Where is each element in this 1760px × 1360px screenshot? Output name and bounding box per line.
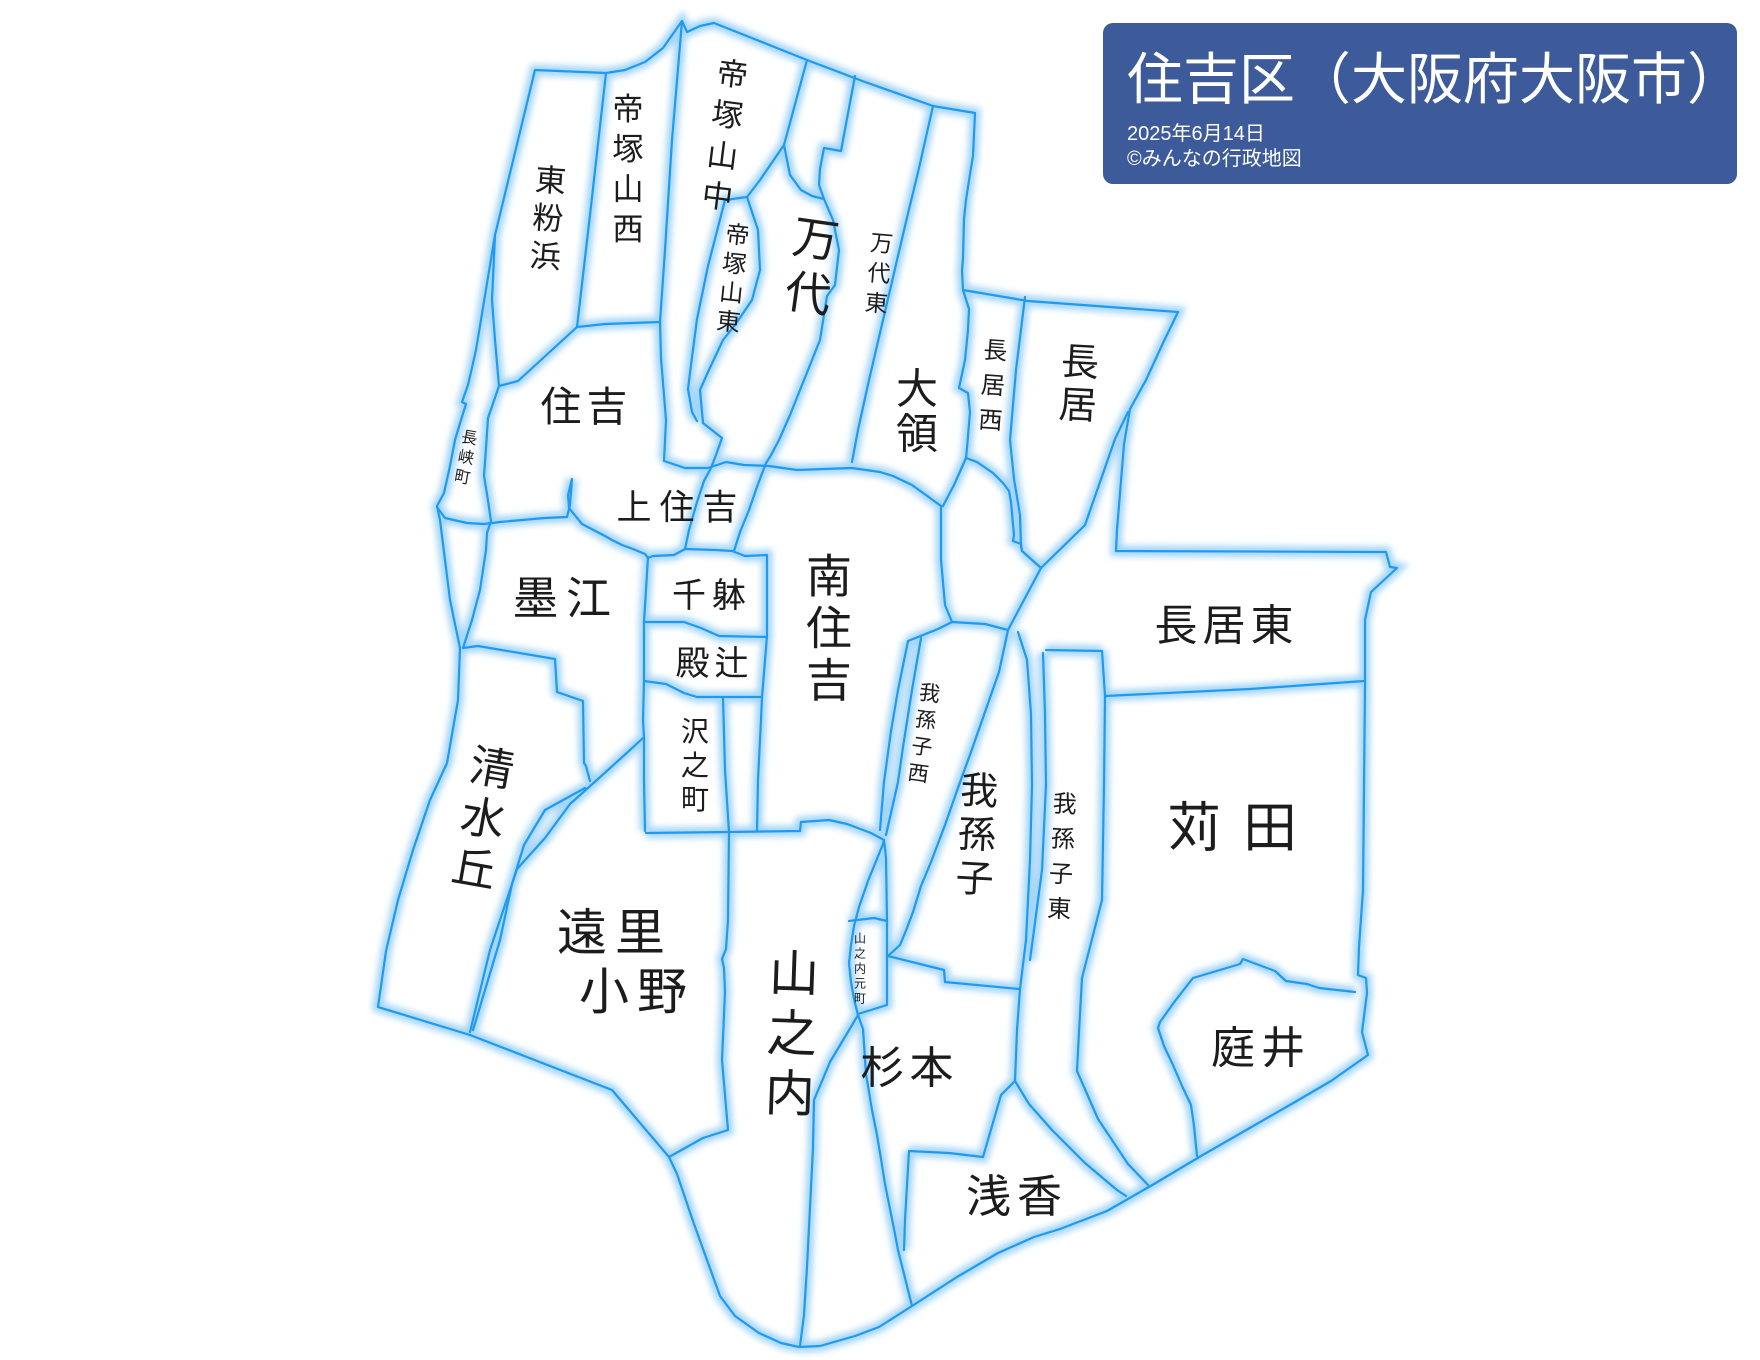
svg-text:2025年6月14日: 2025年6月14日 xyxy=(1127,122,1265,145)
svg-text:西: 西 xyxy=(906,761,930,787)
svg-text:代: 代 xyxy=(782,265,835,323)
svg-text:殿辻: 殿辻 xyxy=(676,645,754,683)
svg-text:庭井: 庭井 xyxy=(1211,1024,1311,1073)
svg-text:山: 山 xyxy=(613,172,644,207)
svg-text:吉: 吉 xyxy=(806,655,852,707)
svg-text:粉: 粉 xyxy=(531,200,564,237)
svg-text:東: 東 xyxy=(864,289,889,317)
svg-text:之: 之 xyxy=(854,946,866,960)
svg-text:居: 居 xyxy=(980,372,1006,401)
svg-text:帝: 帝 xyxy=(724,221,751,250)
svg-text:長: 長 xyxy=(1060,341,1100,385)
svg-text:水: 水 xyxy=(457,791,509,847)
svg-text:子: 子 xyxy=(955,858,995,902)
svg-text:我: 我 xyxy=(959,770,999,814)
svg-text:内: 内 xyxy=(854,961,866,975)
svg-text:町: 町 xyxy=(854,991,866,1005)
svg-text:之: 之 xyxy=(681,750,709,781)
svg-text:墨江: 墨江 xyxy=(513,573,619,624)
svg-text:帝: 帝 xyxy=(613,92,644,127)
svg-text:南: 南 xyxy=(806,551,852,603)
svg-text:山: 山 xyxy=(705,137,740,176)
svg-text:居: 居 xyxy=(1058,384,1098,428)
svg-text:西: 西 xyxy=(613,212,644,247)
svg-text:長居東: 長居東 xyxy=(1155,602,1299,650)
svg-text:中: 中 xyxy=(700,177,735,216)
svg-text:町: 町 xyxy=(453,468,472,488)
svg-text:之: 之 xyxy=(766,1005,818,1063)
svg-text:万: 万 xyxy=(789,210,842,268)
svg-text:塚: 塚 xyxy=(721,250,748,279)
svg-text:長: 長 xyxy=(460,428,479,449)
svg-text:浅香: 浅香 xyxy=(966,1171,1068,1222)
svg-text:©みんなの行政地図: ©みんなの行政地図 xyxy=(1127,147,1302,170)
svg-text:清: 清 xyxy=(466,741,518,797)
svg-text:内: 内 xyxy=(764,1065,816,1123)
svg-text:帝: 帝 xyxy=(715,55,750,94)
svg-text:塚: 塚 xyxy=(613,132,644,167)
svg-text:西: 西 xyxy=(978,407,1004,436)
svg-text:我: 我 xyxy=(1052,791,1077,819)
svg-text:杉本: 杉本 xyxy=(861,1044,959,1093)
svg-text:子: 子 xyxy=(910,735,934,761)
svg-text:我: 我 xyxy=(917,681,941,707)
svg-text:住吉区（大阪府大阪市）: 住吉区（大阪府大阪市） xyxy=(1127,48,1743,111)
svg-text:子: 子 xyxy=(1048,861,1073,889)
svg-text:丘: 丘 xyxy=(448,842,500,898)
svg-text:山: 山 xyxy=(854,931,866,945)
svg-text:東: 東 xyxy=(715,308,742,337)
svg-text:峡: 峡 xyxy=(456,447,475,468)
svg-text:孫: 孫 xyxy=(957,814,997,858)
svg-text:町: 町 xyxy=(681,784,709,815)
svg-text:山: 山 xyxy=(768,945,820,1003)
svg-text:孫: 孫 xyxy=(914,708,938,734)
svg-text:孫: 孫 xyxy=(1050,826,1075,854)
svg-text:沢: 沢 xyxy=(681,716,709,747)
svg-text:代: 代 xyxy=(866,259,891,287)
svg-text:上住吉: 上住吉 xyxy=(616,489,745,528)
svg-text:山: 山 xyxy=(718,279,745,308)
svg-text:長: 長 xyxy=(982,337,1008,366)
svg-text:塚: 塚 xyxy=(710,96,745,135)
svg-text:住吉: 住吉 xyxy=(541,384,633,430)
svg-text:苅田: 苅田 xyxy=(1167,798,1319,858)
svg-text:千躰: 千躰 xyxy=(672,577,752,615)
svg-text:大: 大 xyxy=(896,366,938,413)
svg-text:小野: 小野 xyxy=(579,964,695,1020)
svg-text:元: 元 xyxy=(854,976,866,990)
svg-text:領: 領 xyxy=(896,411,938,458)
svg-text:住: 住 xyxy=(806,603,852,655)
svg-text:東: 東 xyxy=(1047,895,1072,923)
svg-text:万: 万 xyxy=(869,229,894,257)
svg-text:遠里: 遠里 xyxy=(557,905,673,961)
svg-text:東: 東 xyxy=(534,162,567,199)
svg-text:浜: 浜 xyxy=(529,238,562,275)
